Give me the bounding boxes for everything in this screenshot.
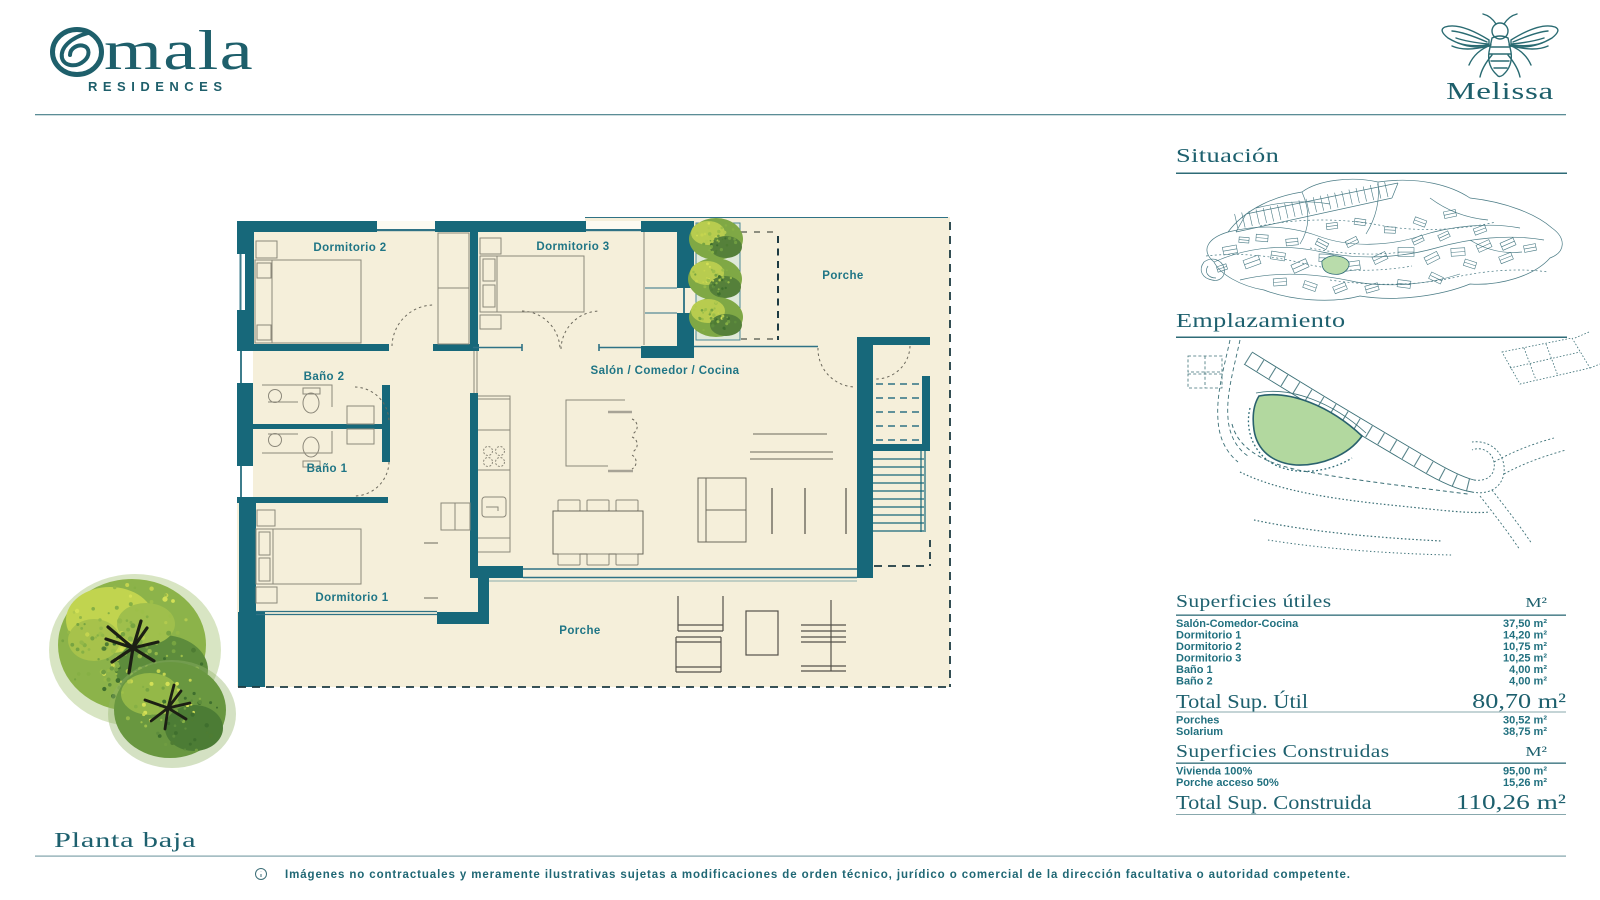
svg-text:Total Sup. Útil: Total Sup. Útil [1176,690,1308,713]
svg-text:Dormitorio 1: Dormitorio 1 [1176,630,1241,642]
svg-text:15,26 m²: 15,26 m² [1503,777,1547,789]
svg-text:Dormitorio 2: Dormitorio 2 [313,242,386,254]
svg-text:Vivienda 100%: Vivienda 100% [1176,766,1252,778]
svg-text:10,75 m²: 10,75 m² [1503,641,1547,653]
svg-text:mala: mala [104,20,254,82]
svg-text:Baño 2: Baño 2 [1176,676,1213,688]
svg-text:110,26 m²: 110,26 m² [1456,791,1566,814]
svg-text:37,50 m²: 37,50 m² [1503,618,1547,630]
svg-text:Planta baja: Planta baja [54,829,196,852]
svg-text:Imágenes no contractuales y me: Imágenes no contractuales y meramente il… [285,869,1351,881]
svg-text:Porche: Porche [822,270,863,282]
svg-text:Emplazamiento: Emplazamiento [1176,310,1345,332]
svg-text:M²: M² [1525,595,1547,611]
svg-text:Situación: Situación [1176,145,1279,167]
svg-text:30,52 m²: 30,52 m² [1503,715,1547,727]
svg-text:M²: M² [1525,744,1547,760]
svg-text:80,70 m²: 80,70 m² [1472,690,1566,713]
svg-text:Baño 1: Baño 1 [1176,664,1213,676]
svg-text:4,00 m²: 4,00 m² [1509,664,1547,676]
svg-text:Baño 2: Baño 2 [304,371,345,383]
svg-text:10,25 m²: 10,25 m² [1503,653,1547,665]
svg-text:4,00 m²: 4,00 m² [1509,676,1547,688]
svg-text:RESIDENCES: RESIDENCES [88,79,228,94]
svg-text:Superficies útiles: Superficies útiles [1176,593,1331,612]
svg-text:Superficies Construidas: Superficies Construidas [1176,743,1389,762]
svg-text:Baño 1: Baño 1 [307,463,348,475]
svg-text:38,75 m²: 38,75 m² [1503,726,1547,738]
svg-text:Melissa: Melissa [1446,78,1554,105]
svg-text:Porche: Porche [559,625,600,637]
svg-text:Salón / Comedor / Cocina: Salón / Comedor / Cocina [591,365,740,377]
svg-text:Dormitorio 3: Dormitorio 3 [1176,653,1241,665]
svg-text:Dormitorio 2: Dormitorio 2 [1176,641,1241,653]
svg-text:Salón-Comedor-Cocina: Salón-Comedor-Cocina [1176,618,1299,630]
svg-text:Porche acceso 50%: Porche acceso 50% [1176,777,1279,789]
svg-text:95,00 m²: 95,00 m² [1503,766,1547,778]
svg-text:Dormitorio 3: Dormitorio 3 [536,241,609,253]
svg-text:Solarium: Solarium [1176,726,1223,738]
svg-text:Total Sup. Construida: Total Sup. Construida [1176,791,1372,814]
svg-text:Dormitorio 1: Dormitorio 1 [315,592,388,604]
svg-text:14,20 m²: 14,20 m² [1503,630,1547,642]
svg-text:Porches: Porches [1176,715,1219,727]
